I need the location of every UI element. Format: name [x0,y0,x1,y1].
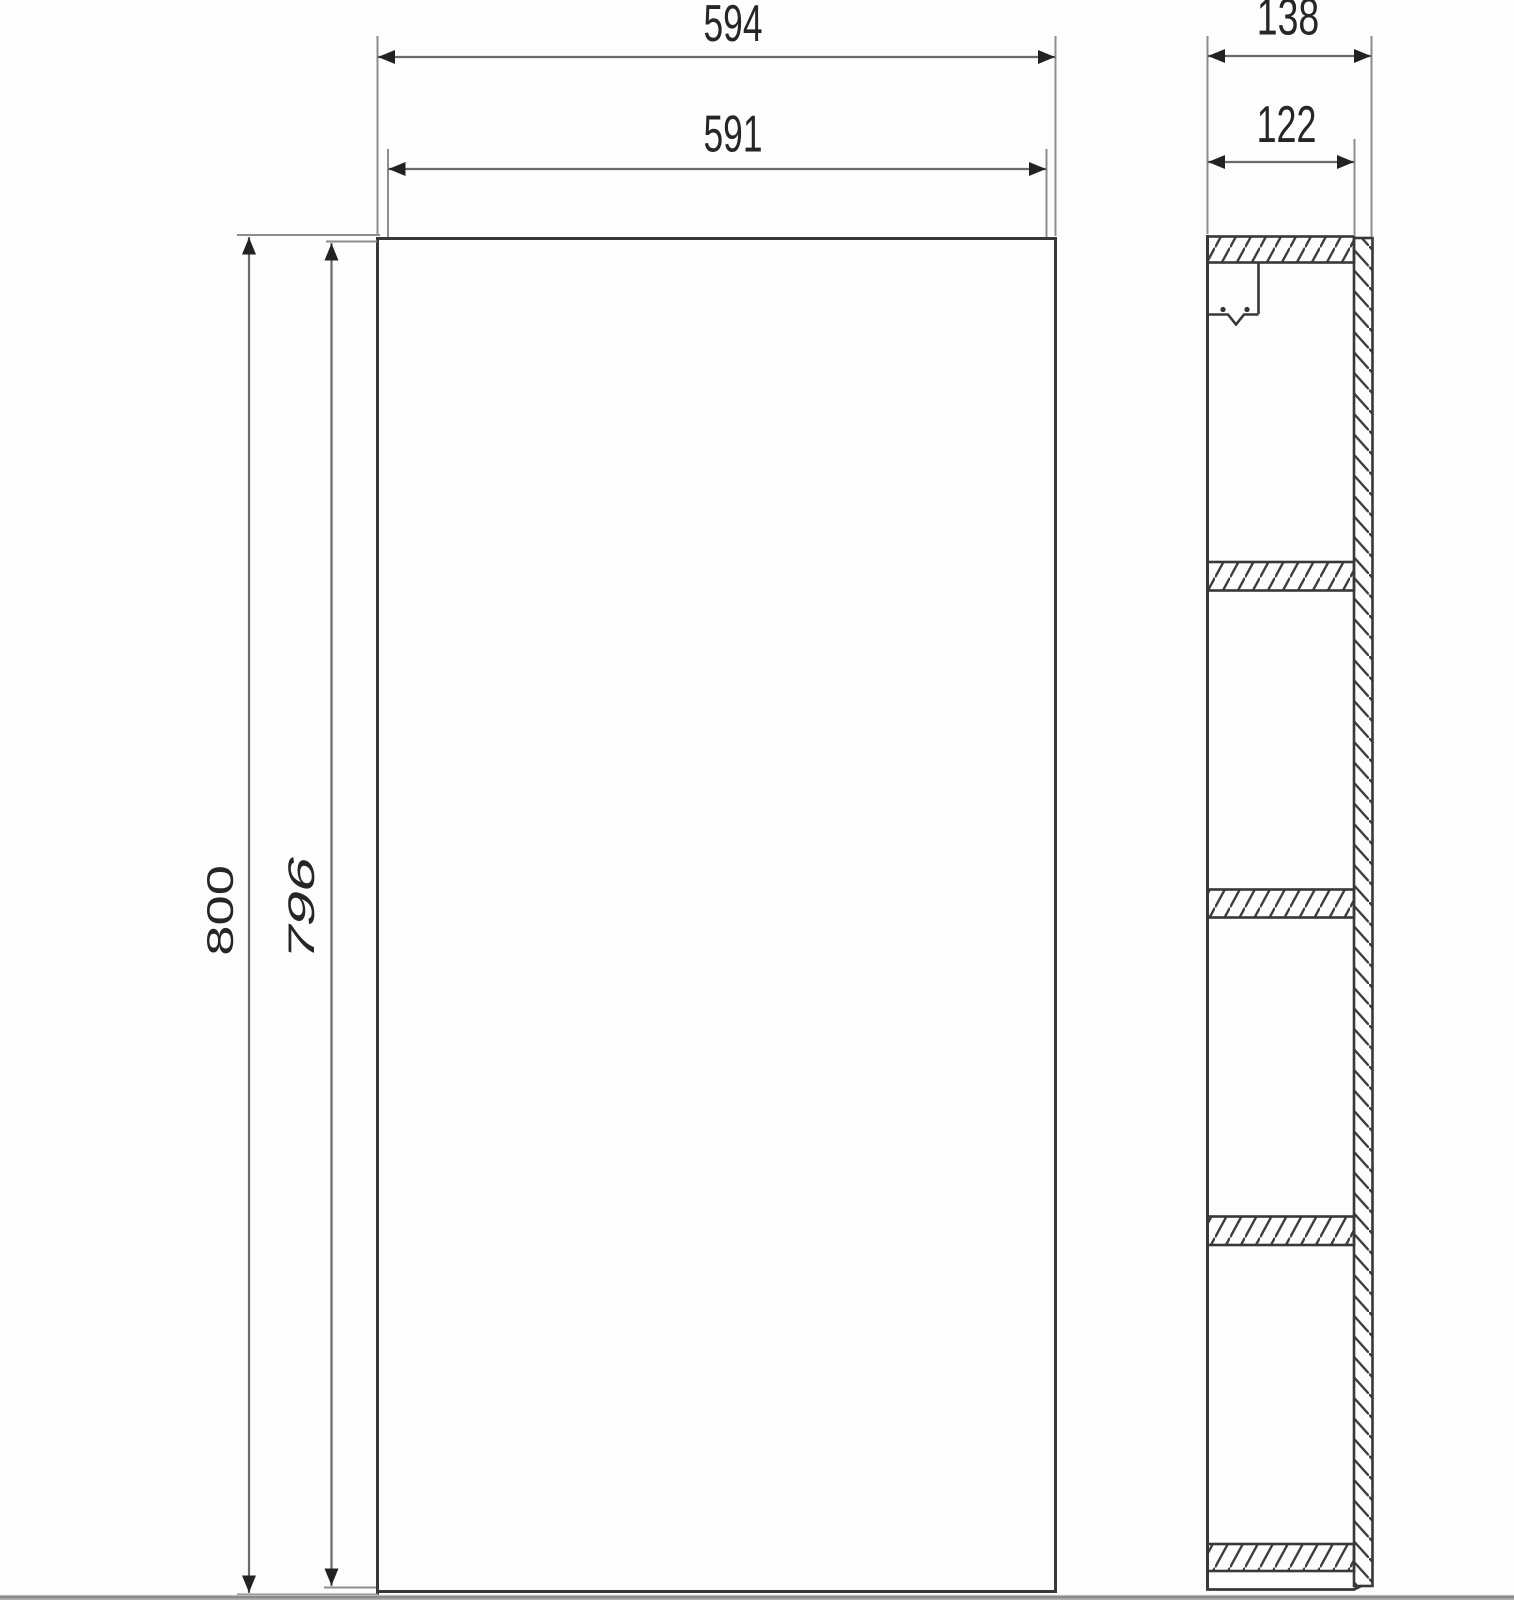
svg-text:122: 122 [1257,97,1317,154]
svg-text:591: 591 [704,106,763,163]
svg-text:594: 594 [704,0,763,52]
svg-text:138: 138 [1257,0,1319,46]
svg-text:796: 796 [281,849,322,967]
svg-text:800: 800 [200,865,241,956]
